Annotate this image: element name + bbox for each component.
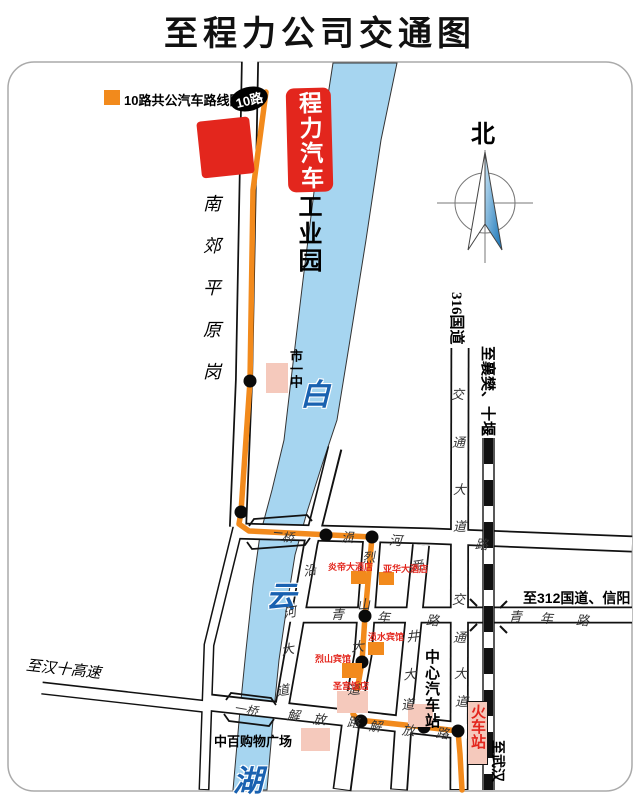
dest-label-g312: 至312国道、信阳	[523, 588, 630, 608]
road-char: 井	[405, 625, 420, 645]
road-char: 通	[453, 627, 466, 646]
road-char: 路	[346, 711, 361, 731]
railway-station-label: 火车站	[467, 704, 488, 764]
road-char: 涢	[341, 527, 355, 547]
road-char: 大	[453, 479, 466, 498]
school-building	[266, 363, 288, 393]
traffic-map: 至程力公司交通图 10路共公汽车路线图 10路 程力汽车 工业园 北 南郊平原岗…	[0, 0, 640, 799]
poi-label-zhongbai: 中百购物广场	[214, 731, 292, 750]
road-char: 大	[350, 636, 364, 656]
road-char: 道	[453, 516, 466, 535]
industrial-park-label: 工业园	[290, 194, 325, 275]
company-name: 程力汽车	[291, 91, 328, 193]
bridge-label-2: 二桥	[269, 527, 294, 546]
poi-label-yandi: 炎帝大酒店	[328, 560, 373, 573]
road-char: 大	[454, 663, 467, 682]
road-char: 青	[509, 606, 523, 626]
road-char: 年	[540, 608, 554, 628]
poi-label-yunshui: 涢水宾馆	[368, 630, 404, 643]
road-label-g316: 316国道	[447, 292, 468, 345]
road-char: 河	[389, 530, 403, 550]
company-name-box: 程力汽车	[286, 87, 334, 192]
river-char-hu: 湖	[233, 756, 263, 799]
road-char: 青	[331, 604, 345, 624]
railway-station-building: 火车站	[467, 701, 488, 765]
road-char: 解	[368, 715, 383, 735]
poi-building-yunshui	[368, 642, 384, 655]
legend-label: 10路共公汽车路线图	[124, 90, 242, 109]
road-char: 路	[426, 610, 440, 630]
dest-label-wuhan: 至武汉	[488, 740, 508, 782]
road-char: 交	[451, 384, 464, 403]
road-char: 放	[401, 719, 416, 739]
road-char: 道	[400, 693, 415, 713]
school-label: 市一中	[286, 349, 305, 388]
road-char: 解	[286, 704, 301, 724]
poi-label-yahua: 亚华大酒店	[383, 562, 428, 575]
compass-north-label: 北	[471, 114, 495, 149]
road-char: 通	[452, 432, 465, 451]
road-char: 放	[312, 708, 327, 728]
poi-label-shenggong: 圣宫饭店	[333, 679, 369, 692]
legend-swatch	[104, 90, 120, 105]
bus-station-label: 中心汽车站	[421, 649, 442, 729]
company-building	[196, 116, 255, 178]
poi-label-lieshan-hotel: 烈山宾馆	[315, 652, 351, 665]
road-char: 路	[576, 610, 590, 630]
dest-label-xiangfan: 至襄樊、十堰	[478, 346, 499, 436]
road-char: 路	[475, 534, 489, 554]
poi-building-zhongbai	[301, 728, 330, 751]
road-char: 大	[402, 663, 417, 683]
road-char: 山	[356, 594, 370, 614]
road-char: 年	[377, 607, 391, 627]
road-char: 交	[452, 589, 465, 608]
area-label-nanjiao: 南郊平原岗	[198, 194, 224, 404]
poi-building-lieshan-hotel	[342, 663, 362, 678]
